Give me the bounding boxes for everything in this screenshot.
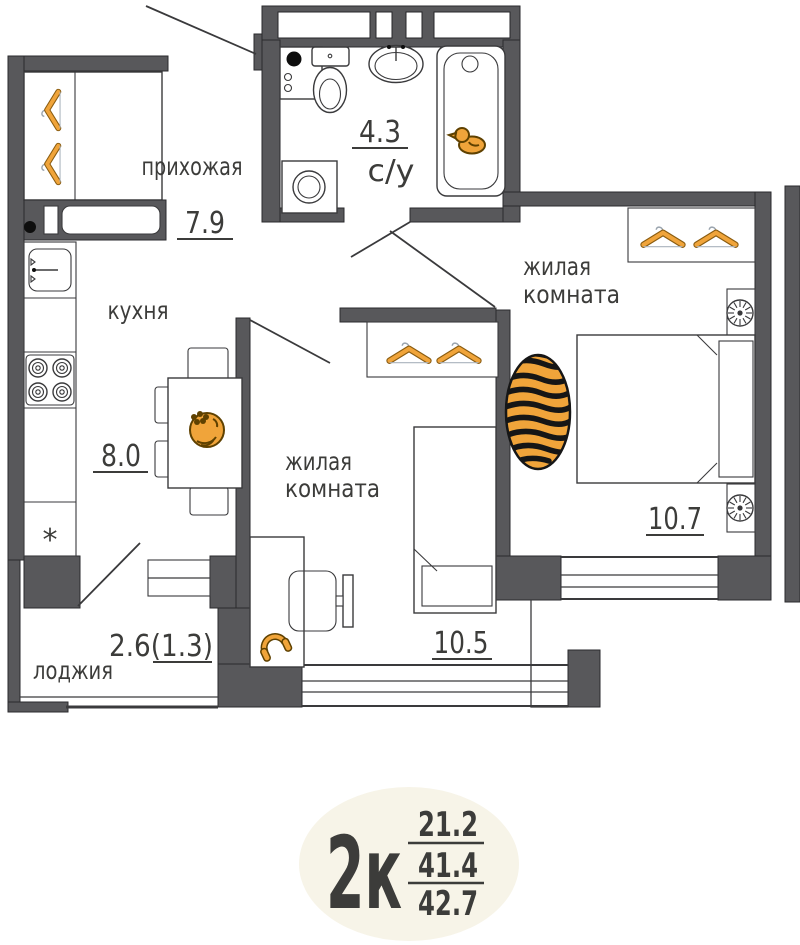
living-room-wardrobe	[367, 322, 498, 377]
wall-socket-icon	[24, 221, 36, 233]
wall-midroom-top	[340, 308, 496, 322]
loggia-area: 2.6(1.3)	[109, 629, 213, 664]
bedroom-label-line1: жилая	[523, 252, 591, 281]
washbasin-icon	[369, 45, 423, 83]
vent-shaft	[376, 12, 392, 38]
bedroom-area: 10.7	[648, 502, 702, 537]
desk	[250, 537, 304, 667]
wall-loggia-corner	[8, 702, 68, 712]
kitchen-label: кухня	[108, 296, 169, 325]
chair	[190, 487, 228, 515]
wall-midroom-window-pier	[568, 650, 600, 707]
bedroom-label-line2: комната	[523, 280, 620, 309]
fridge-symbol: *	[43, 523, 58, 558]
wall-bedroom-window-left	[496, 556, 561, 600]
wall-bathroom-bottom-right	[410, 208, 503, 222]
bathroom-area: 4.3	[359, 115, 401, 150]
badge-type: 2к	[326, 815, 402, 932]
floor-plan-svg: прихожая 7.9	[0, 0, 800, 945]
hallway-label: прихожая	[142, 152, 243, 181]
loggia-label: лоджия	[33, 656, 113, 685]
bathroom-label: с/у	[368, 154, 415, 189]
shoe-bench-seat	[62, 206, 160, 234]
wall-bedroom-right	[755, 192, 771, 600]
nightstand-lamp-icon	[727, 484, 755, 532]
wall-left	[8, 56, 24, 560]
monitor-stand	[336, 596, 343, 606]
shoe-bench-side	[44, 206, 58, 234]
toilet-icon	[312, 47, 349, 113]
living-room-area: 10.5	[434, 626, 489, 661]
badge-total-area: 42.7	[418, 884, 478, 924]
vent-shaft	[434, 12, 510, 38]
living-room-label-line1: жилая	[285, 447, 352, 476]
window-kitchen-loggia	[148, 560, 210, 596]
wall-bedroom-top	[503, 192, 771, 206]
bed-double	[577, 335, 755, 483]
bed-single	[414, 427, 496, 613]
wall-divider-base	[218, 608, 250, 668]
badge-living-area: 21.2	[418, 805, 478, 845]
living-room-label-line2: комната	[285, 474, 380, 503]
bedroom-wardrobe	[628, 208, 755, 262]
vent-shaft	[278, 12, 370, 38]
wall-bedroom-window-right	[718, 556, 771, 600]
vent-shaft	[406, 12, 422, 38]
wall-hallway-top	[18, 56, 168, 71]
wall-outer-strip	[785, 186, 800, 602]
monitor-icon	[343, 575, 353, 627]
badge-area: 41.4	[418, 846, 478, 886]
chair	[188, 348, 228, 381]
nightstand-lamp-icon	[727, 289, 755, 337]
washing-machine-icon	[282, 161, 337, 213]
kitchen-area: 8.0	[101, 439, 141, 474]
wall-step-right	[210, 556, 238, 608]
bathtub-icon	[437, 46, 505, 196]
wall-kitchen-loggia-step	[24, 556, 80, 608]
wall-midroom-window-left	[218, 664, 302, 707]
wall-bathroom-left	[262, 40, 280, 222]
summary-badge: 2к 21.2 41.4 42.7	[299, 787, 519, 941]
wall-loggia-left	[8, 560, 20, 712]
hallway-area: 7.9	[185, 206, 225, 241]
